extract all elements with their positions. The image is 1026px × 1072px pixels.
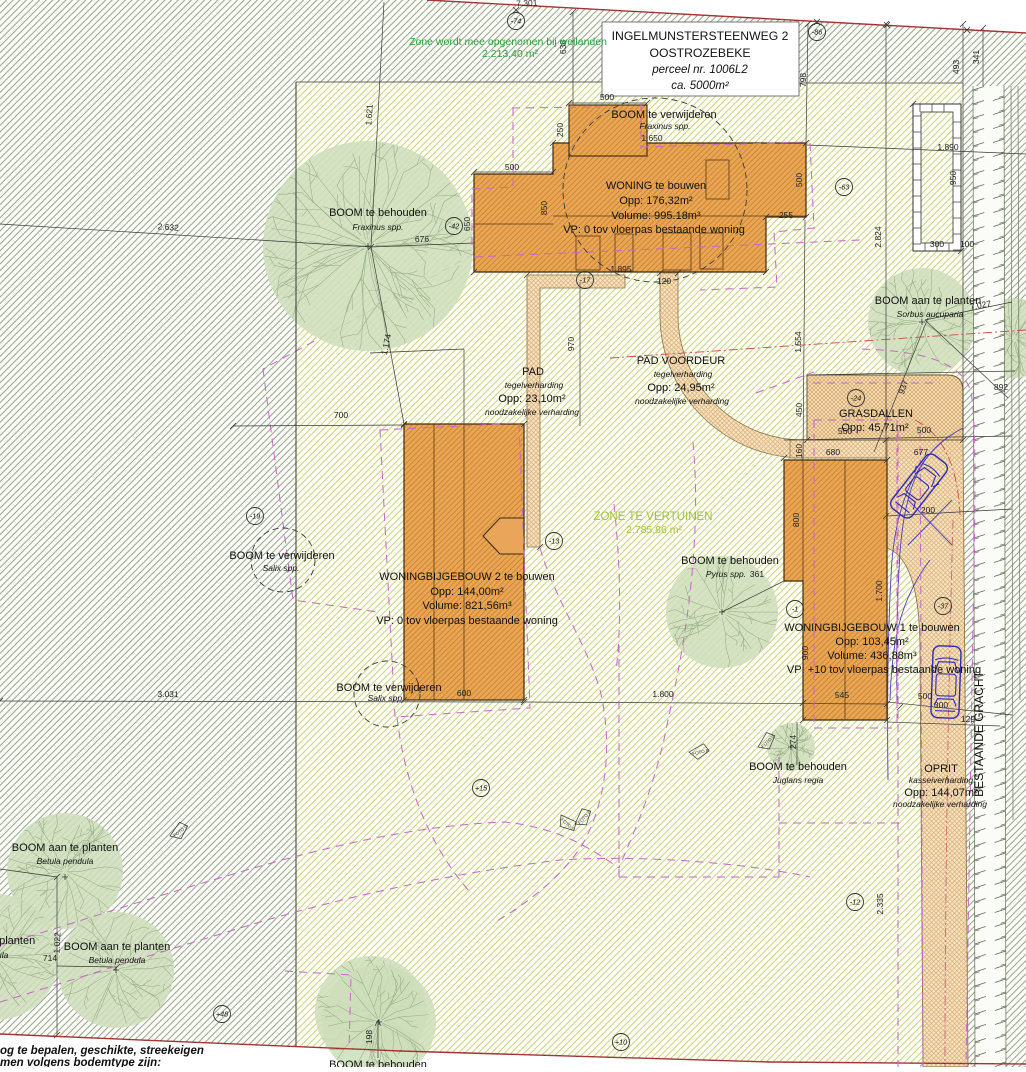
svg-text:Opp: 144,00m²: Opp: 144,00m² bbox=[430, 586, 504, 598]
svg-text:3.031: 3.031 bbox=[157, 689, 179, 699]
svg-text:950: 950 bbox=[948, 171, 958, 185]
svg-text:INGELMUNSTERSTEENWEG 2: INGELMUNSTERSTEENWEG 2 bbox=[612, 29, 789, 43]
svg-text:450: 450 bbox=[794, 403, 804, 417]
svg-text:Salix spp.: Salix spp. bbox=[263, 563, 300, 573]
svg-text:Betula pendula: Betula pendula bbox=[37, 856, 94, 866]
svg-text:300: 300 bbox=[934, 700, 948, 710]
svg-text:120: 120 bbox=[657, 276, 671, 286]
svg-text:VP: +10 tov vloerpas bestaande: VP: +10 tov vloerpas bestaande woning bbox=[787, 664, 981, 676]
svg-text:1.650: 1.650 bbox=[641, 133, 663, 143]
svg-text:-63: -63 bbox=[839, 183, 849, 192]
svg-text:600: 600 bbox=[457, 688, 471, 698]
svg-text:Opp: 144,07m²: Opp: 144,07m² bbox=[904, 787, 978, 799]
svg-text:300: 300 bbox=[930, 239, 944, 249]
svg-text:-1: -1 bbox=[792, 605, 798, 614]
svg-text:PAD: PAD bbox=[522, 366, 544, 378]
svg-text:Opp: 103,45m²: Opp: 103,45m² bbox=[835, 636, 909, 648]
svg-text:7.301: 7.301 bbox=[516, 0, 538, 9]
svg-text:OPRIT: OPRIT bbox=[924, 763, 958, 775]
svg-text:noodzakelijke verharding: noodzakelijke verharding bbox=[485, 407, 579, 417]
svg-text:500: 500 bbox=[918, 691, 932, 701]
svg-text:1.800: 1.800 bbox=[652, 689, 674, 699]
svg-text:361: 361 bbox=[750, 569, 764, 579]
svg-text:BOOM aan te planten: BOOM aan te planten bbox=[12, 842, 118, 854]
svg-text:200: 200 bbox=[921, 505, 935, 515]
svg-text:OOSTROZEBEKE: OOSTROZEBEKE bbox=[650, 46, 751, 60]
svg-text:Juglans regia: Juglans regia bbox=[772, 775, 824, 785]
svg-text:Betula pendula: Betula pendula bbox=[89, 955, 146, 965]
svg-text:Zone wordt mee opgenomen bij: Zone wordt mee opgenomen bij weilanden bbox=[409, 36, 607, 48]
svg-text:500: 500 bbox=[794, 173, 804, 187]
svg-text:tegelverharding: tegelverharding bbox=[505, 380, 564, 390]
svg-text:1.895: 1.895 bbox=[610, 264, 632, 274]
svg-text:900: 900 bbox=[800, 646, 810, 660]
svg-text:-12: -12 bbox=[850, 898, 860, 907]
svg-text:noodzakelijke verharding: noodzakelijke verharding bbox=[893, 799, 987, 809]
svg-text:BOOM aan te planten: BOOM aan te planten bbox=[875, 295, 981, 307]
svg-text:GRASDALLEN: GRASDALLEN bbox=[839, 408, 913, 420]
svg-text:BOOM te verwijderen: BOOM te verwijderen bbox=[229, 550, 334, 562]
svg-text:+48: +48 bbox=[216, 1010, 228, 1019]
svg-text:Volume: 436,88m³: Volume: 436,88m³ bbox=[827, 650, 917, 662]
svg-text:700: 700 bbox=[334, 410, 348, 420]
svg-text:Betula pendula: Betula pendula bbox=[0, 950, 9, 960]
svg-text:+15: +15 bbox=[475, 784, 488, 793]
svg-text:680: 680 bbox=[826, 447, 840, 457]
svg-text:BOOM te behouden: BOOM te behouden bbox=[749, 761, 847, 773]
svg-text:VP: 0 tov vloerpas bestaande w: VP: 0 tov vloerpas bestaande woning bbox=[563, 224, 745, 236]
svg-text:1.022: 1.022 bbox=[51, 932, 62, 954]
svg-text:100: 100 bbox=[960, 239, 974, 249]
svg-text:493: 493 bbox=[951, 60, 961, 74]
svg-text:perceel nr. 1006L2: perceel nr. 1006L2 bbox=[651, 64, 748, 76]
svg-text:Opp: 176,32m²: Opp: 176,32m² bbox=[619, 195, 693, 207]
svg-text:2.335: 2.335 bbox=[875, 893, 885, 915]
svg-text:Volume: 821,56m³: Volume: 821,56m³ bbox=[422, 600, 512, 612]
svg-text:Sorbus aucuparia: Sorbus aucuparia bbox=[897, 309, 964, 319]
svg-text:VP: 0 tov vloerpas bestaande w: VP: 0 tov vloerpas bestaande woning bbox=[376, 615, 558, 627]
svg-text:noodzakelijke verharding: noodzakelijke verharding bbox=[635, 396, 729, 406]
svg-text:1.554: 1.554 bbox=[793, 331, 803, 353]
svg-text:+10: +10 bbox=[615, 1038, 627, 1047]
svg-text:Pyrus spp.: Pyrus spp. bbox=[706, 569, 746, 579]
svg-text:BOOM aan te planten: BOOM aan te planten bbox=[0, 935, 35, 947]
svg-text:BOOM te behouden: BOOM te behouden bbox=[329, 1059, 427, 1067]
svg-text:BOOM te behouden: BOOM te behouden bbox=[681, 555, 779, 567]
svg-text:677: 677 bbox=[914, 447, 928, 457]
svg-text:2.632: 2.632 bbox=[157, 221, 179, 232]
svg-text:-42: -42 bbox=[449, 222, 459, 231]
svg-text:500: 500 bbox=[505, 162, 519, 172]
svg-text:800: 800 bbox=[791, 513, 801, 527]
svg-text:-24: -24 bbox=[851, 394, 861, 403]
svg-text:-13: -13 bbox=[549, 537, 559, 546]
svg-text:500: 500 bbox=[917, 425, 931, 435]
svg-text:676: 676 bbox=[415, 234, 429, 244]
svg-text:-37: -37 bbox=[938, 602, 949, 611]
svg-text:WONINGBIJGEBOUW 1 te bouwen: WONINGBIJGEBOUW 1 te bouwen bbox=[784, 622, 959, 634]
svg-text:650: 650 bbox=[462, 217, 472, 231]
svg-text:Opp: 24,95m²: Opp: 24,95m² bbox=[647, 382, 715, 394]
svg-text:892: 892 bbox=[994, 382, 1008, 392]
svg-text:545: 545 bbox=[835, 690, 849, 700]
svg-text:160: 160 bbox=[794, 444, 804, 458]
svg-text:BOOM te behouden: BOOM te behouden bbox=[329, 207, 427, 219]
svg-text:970: 970 bbox=[566, 337, 576, 351]
svg-text:250: 250 bbox=[555, 123, 565, 137]
svg-text:341: 341 bbox=[971, 50, 981, 64]
svg-text:-86: -86 bbox=[812, 28, 822, 37]
svg-text:Opp: 45,71m²: Opp: 45,71m² bbox=[841, 422, 909, 434]
svg-text:1.890: 1.890 bbox=[937, 142, 959, 152]
svg-text:714: 714 bbox=[43, 953, 57, 963]
svg-text:198: 198 bbox=[364, 1030, 374, 1044]
svg-text:Opp: 23,10m²: Opp: 23,10m² bbox=[498, 393, 566, 405]
svg-text:Fraxinus spp.: Fraxinus spp. bbox=[352, 222, 403, 232]
svg-text:og te bepalen, geschikte, stre: og te bepalen, geschikte, streekeigen bbox=[0, 1045, 204, 1057]
svg-text:2.213,40 m²: 2.213,40 m² bbox=[482, 48, 539, 60]
svg-text:Volume: 995.18m³: Volume: 995.18m³ bbox=[611, 210, 701, 222]
svg-text:BOOM aan te planten: BOOM aan te planten bbox=[64, 941, 170, 953]
svg-text:850: 850 bbox=[539, 201, 549, 215]
svg-text:798: 798 bbox=[798, 73, 808, 87]
svg-text:ZONE TE VERTUINEN: ZONE TE VERTUINEN bbox=[593, 511, 712, 523]
svg-text:men volgens bodemtype zijn:: men volgens bodemtype zijn: bbox=[0, 1057, 161, 1067]
svg-text:ca. 5000m²: ca. 5000m² bbox=[671, 80, 730, 92]
svg-text:2.785,86 m²: 2.785,86 m² bbox=[626, 524, 683, 536]
svg-text:tegelverharding: tegelverharding bbox=[654, 369, 713, 379]
svg-text:kasseiverharding: kasseiverharding bbox=[909, 775, 974, 785]
svg-text:Fraxinus spp.: Fraxinus spp. bbox=[639, 121, 690, 131]
svg-text:WONINGBIJGEBOUW 2 te bouwen: WONINGBIJGEBOUW 2 te bouwen bbox=[379, 571, 554, 583]
svg-text:PAD VOORDEUR: PAD VOORDEUR bbox=[637, 355, 725, 367]
svg-text:2.824: 2.824 bbox=[873, 226, 883, 248]
svg-text:500: 500 bbox=[600, 92, 614, 102]
svg-text:WONING te bouwen: WONING te bouwen bbox=[606, 180, 706, 192]
svg-text:BOOM te verwijderen: BOOM te verwijderen bbox=[611, 109, 716, 121]
svg-text:Salix spp.: Salix spp. bbox=[368, 693, 405, 703]
svg-text:-17: -17 bbox=[580, 276, 591, 285]
svg-text:-74: -74 bbox=[511, 17, 521, 26]
svg-text:-19: -19 bbox=[250, 512, 260, 521]
svg-text:BESTAANDE GRACHT: BESTAANDE GRACHT bbox=[972, 670, 986, 796]
svg-text:1.621: 1.621 bbox=[363, 104, 374, 126]
svg-text:255: 255 bbox=[779, 210, 793, 220]
svg-text:1.700: 1.700 bbox=[874, 580, 884, 602]
